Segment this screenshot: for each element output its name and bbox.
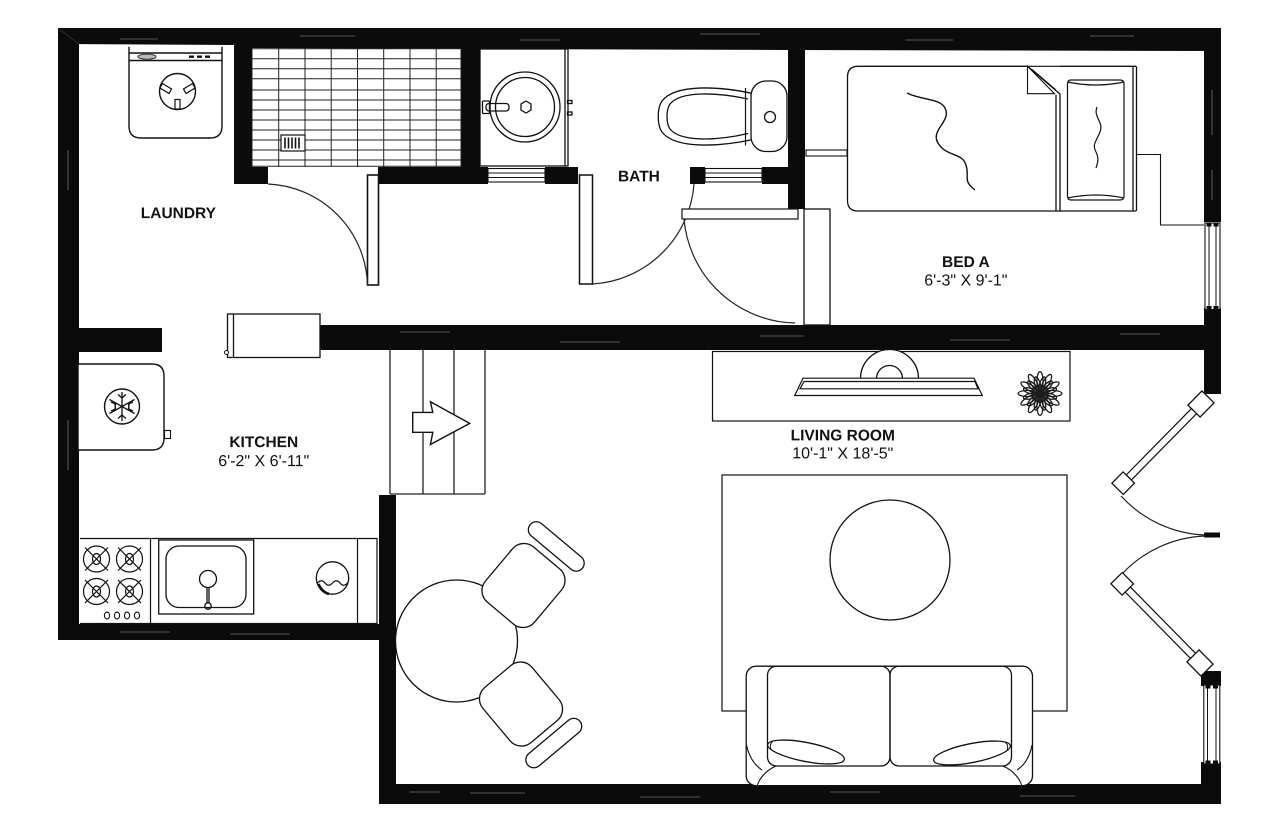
svg-text:KITCHEN: KITCHEN: [229, 434, 298, 451]
svg-text:BATH: BATH: [618, 168, 660, 185]
svg-text:10'-1" X 18'-5": 10'-1" X 18'-5": [792, 445, 893, 462]
svg-text:6'-2" X 6'-11": 6'-2" X 6'-11": [218, 453, 309, 470]
svg-text:LIVING ROOM: LIVING ROOM: [791, 427, 895, 444]
svg-text:LAUNDRY: LAUNDRY: [141, 205, 217, 222]
svg-text:BED A: BED A: [942, 254, 990, 271]
svg-text:6'-3" X 9'-1": 6'-3" X 9'-1": [924, 272, 1007, 289]
